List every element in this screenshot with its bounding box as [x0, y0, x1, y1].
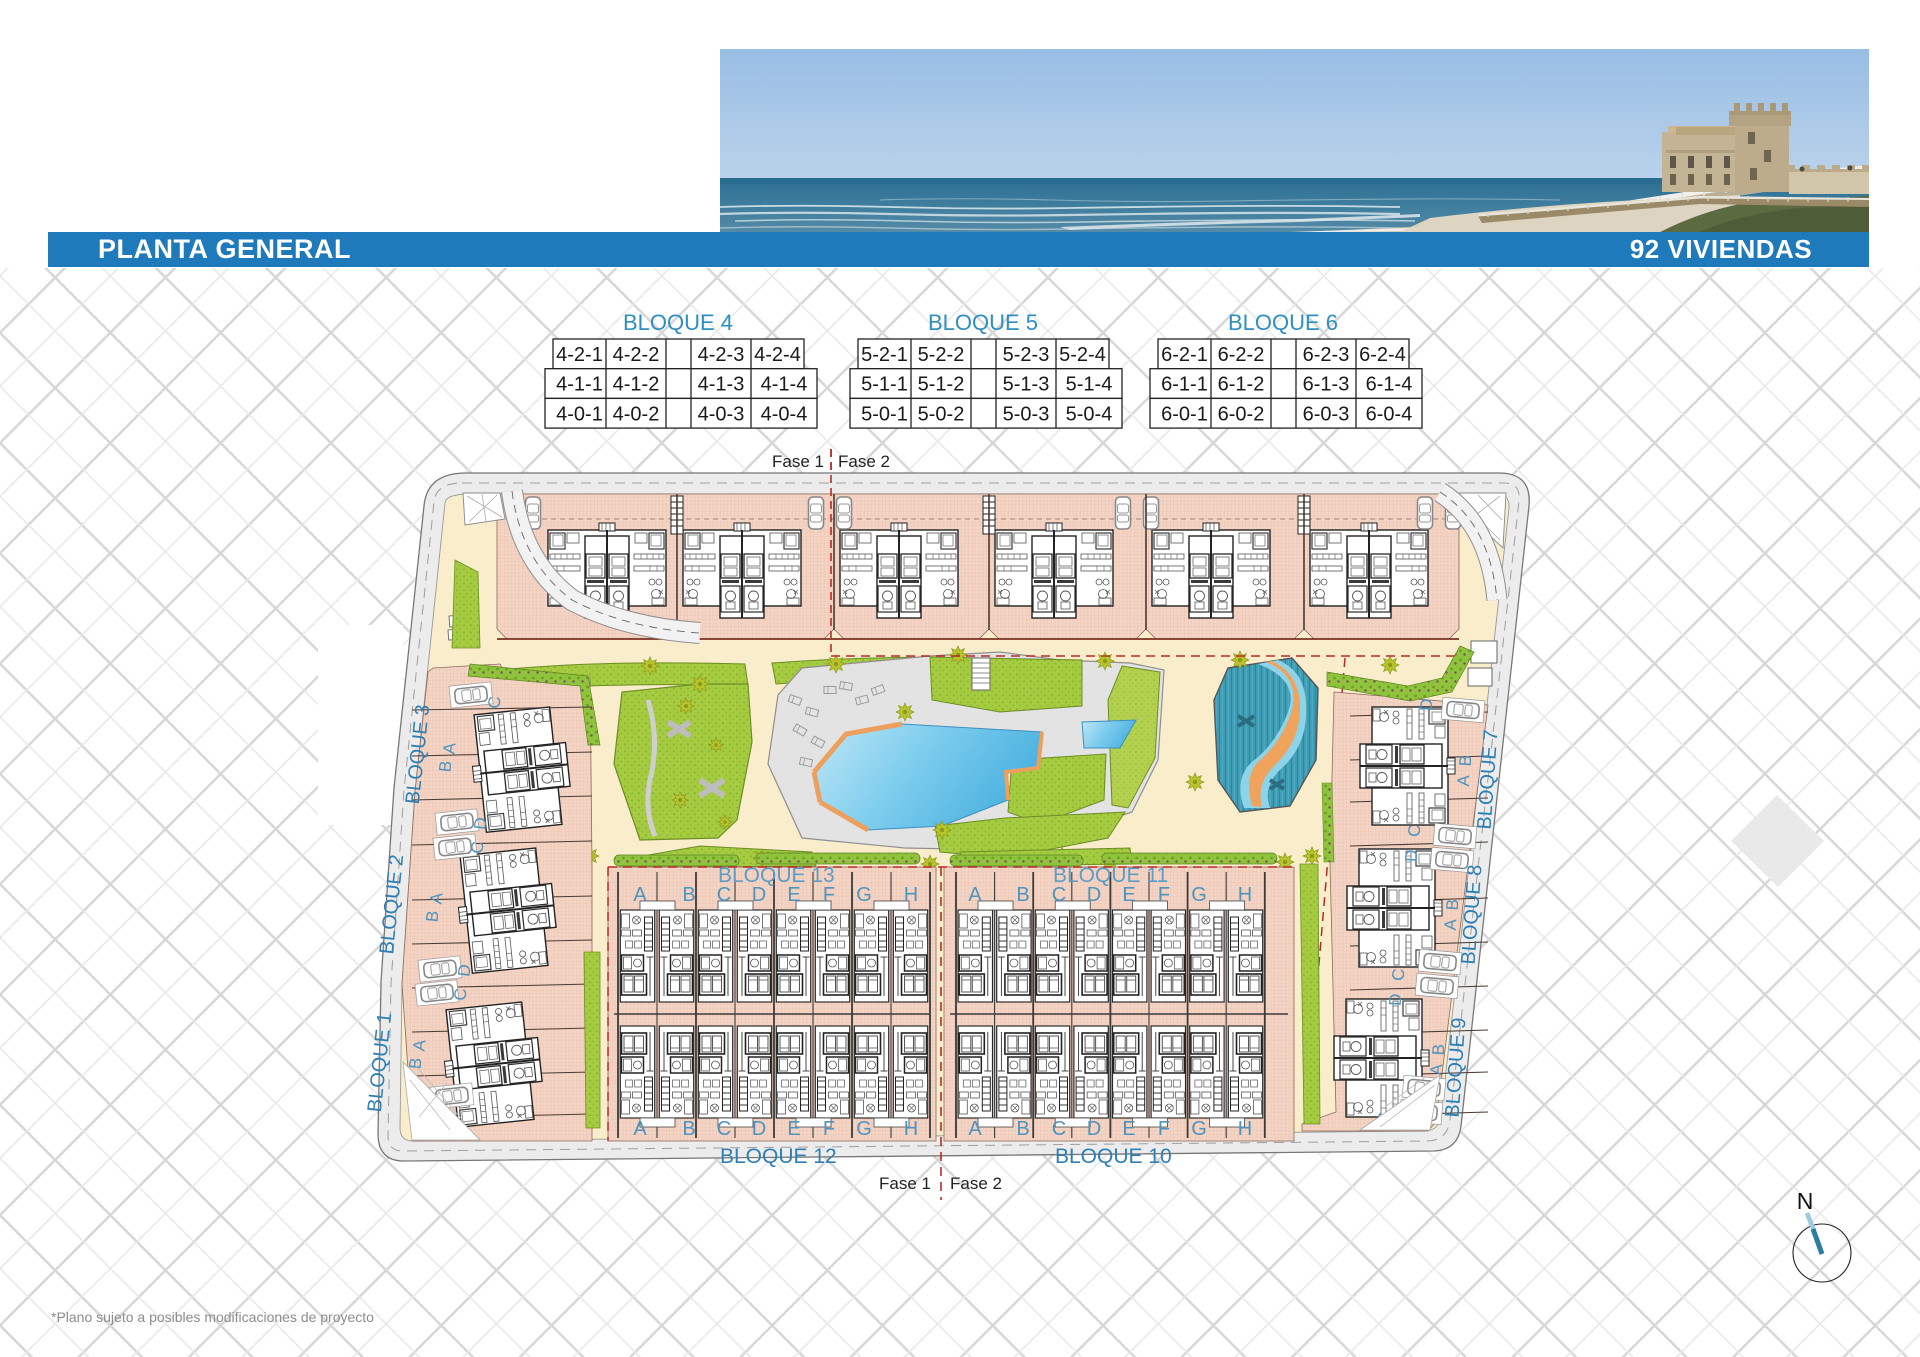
svg-text:6-2-2: 6-2-2	[1218, 344, 1265, 366]
svg-text:F: F	[823, 884, 835, 906]
svg-text:G: G	[1191, 884, 1207, 906]
svg-text:6-0-4: 6-0-4	[1366, 403, 1413, 425]
svg-text:4-0-3: 4-0-3	[698, 403, 745, 425]
svg-text:C: C	[1389, 968, 1409, 981]
svg-text:C: C	[1052, 1118, 1066, 1140]
svg-text:Fase 2: Fase 2	[950, 1174, 1002, 1193]
svg-text:*Plano sujeto a posibles modif: *Plano sujeto a posibles modificaciones …	[51, 1309, 374, 1325]
svg-text:5-1-4: 5-1-4	[1066, 374, 1113, 396]
svg-text:C: C	[484, 695, 504, 709]
svg-text:H: H	[1238, 1118, 1252, 1140]
svg-text:G: G	[856, 1118, 872, 1140]
svg-text:6-1-4: 6-1-4	[1366, 374, 1413, 396]
svg-text:92 VIVIENDAS: 92 VIVIENDAS	[1630, 234, 1812, 264]
svg-text:5-2-1: 5-2-1	[861, 344, 908, 366]
svg-text:5-1-1: 5-1-1	[861, 374, 908, 396]
svg-text:B: B	[422, 910, 442, 923]
svg-text:Fase 2: Fase 2	[838, 452, 890, 471]
svg-text:6-1-2: 6-1-2	[1218, 374, 1265, 396]
svg-text:B: B	[1016, 1118, 1029, 1140]
svg-text:F: F	[823, 1118, 835, 1140]
svg-text:D: D	[1087, 884, 1101, 906]
svg-text:6-0-2: 6-0-2	[1218, 403, 1265, 425]
svg-text:6-0-1: 6-0-1	[1161, 403, 1208, 425]
svg-text:A: A	[968, 1118, 982, 1140]
svg-text:C: C	[467, 840, 487, 854]
svg-text:5-1-2: 5-1-2	[918, 374, 965, 396]
svg-text:4-0-1: 4-0-1	[556, 403, 603, 425]
svg-text:6-2-3: 6-2-3	[1303, 344, 1350, 366]
svg-text:A: A	[968, 884, 982, 906]
svg-text:BLOQUE 12: BLOQUE 12	[720, 1145, 837, 1168]
svg-text:H: H	[904, 1118, 918, 1140]
svg-text:D: D	[1386, 993, 1406, 1006]
svg-text:E: E	[787, 884, 800, 906]
svg-text:C: C	[717, 884, 731, 906]
svg-text:E: E	[1122, 1118, 1135, 1140]
svg-text:H: H	[904, 884, 918, 906]
svg-text:4-1-4: 4-1-4	[761, 374, 808, 396]
svg-text:A: A	[633, 1118, 647, 1140]
svg-text:PLANTA GENERAL: PLANTA GENERAL	[98, 234, 351, 264]
svg-text:B: B	[682, 884, 695, 906]
svg-text:4-0-4: 4-0-4	[761, 403, 808, 425]
svg-text:5-0-4: 5-0-4	[1066, 403, 1113, 425]
svg-text:4-2-3: 4-2-3	[698, 344, 745, 366]
svg-text:5-2-2: 5-2-2	[918, 344, 965, 366]
svg-text:D: D	[752, 884, 766, 906]
svg-text:D: D	[752, 1118, 766, 1140]
svg-text:Fase 1: Fase 1	[879, 1174, 931, 1193]
svg-text:6-2-1: 6-2-1	[1161, 344, 1208, 366]
svg-text:4-0-2: 4-0-2	[613, 403, 660, 425]
svg-text:A: A	[1441, 918, 1461, 931]
svg-text:6-1-1: 6-1-1	[1161, 374, 1208, 396]
svg-text:6-0-3: 6-0-3	[1303, 403, 1350, 425]
svg-text:B: B	[682, 1118, 695, 1140]
svg-text:BLOQUE 10: BLOQUE 10	[1055, 1145, 1172, 1168]
svg-text:5-0-1: 5-0-1	[861, 403, 908, 425]
svg-text:4-2-4: 4-2-4	[754, 344, 801, 366]
svg-text:4-1-1: 4-1-1	[556, 374, 603, 396]
svg-text:C: C	[1052, 884, 1066, 906]
svg-text:B: B	[1443, 899, 1463, 911]
svg-text:B: B	[1456, 755, 1476, 767]
svg-text:F: F	[1158, 884, 1170, 906]
svg-text:C: C	[1405, 824, 1425, 837]
svg-text:6-1-3: 6-1-3	[1303, 374, 1350, 396]
svg-text:H: H	[1238, 884, 1252, 906]
svg-text:BLOQUE 6: BLOQUE 6	[1228, 310, 1338, 335]
svg-text:D: D	[454, 963, 474, 977]
svg-text:A: A	[1427, 1063, 1447, 1076]
svg-text:6-2-4: 6-2-4	[1359, 344, 1406, 366]
svg-text:D: D	[1402, 849, 1422, 862]
svg-text:N: N	[1797, 1188, 1814, 1214]
svg-text:4-2-1: 4-2-1	[556, 344, 603, 366]
svg-text:Fase 1: Fase 1	[772, 452, 824, 471]
svg-text:G: G	[856, 884, 872, 906]
svg-text:D: D	[1417, 698, 1437, 711]
svg-text:C: C	[717, 1118, 731, 1140]
svg-text:E: E	[787, 1118, 800, 1140]
svg-text:G: G	[1191, 1118, 1207, 1140]
svg-text:D: D	[1087, 1118, 1101, 1140]
svg-text:F: F	[1158, 1118, 1170, 1140]
svg-text:B: B	[1016, 884, 1029, 906]
svg-text:A: A	[633, 884, 647, 906]
svg-text:C: C	[450, 987, 470, 1001]
svg-text:A: A	[1454, 774, 1474, 787]
svg-text:5-2-4: 5-2-4	[1059, 344, 1106, 366]
svg-text:5-2-3: 5-2-3	[1003, 344, 1050, 366]
svg-text:BLOQUE 4: BLOQUE 4	[623, 310, 733, 335]
svg-text:5-1-3: 5-1-3	[1003, 374, 1050, 396]
svg-text:D: D	[470, 816, 490, 830]
svg-text:BLOQUE 5: BLOQUE 5	[928, 310, 1038, 335]
svg-text:4-2-2: 4-2-2	[613, 344, 660, 366]
svg-text:4-1-3: 4-1-3	[698, 374, 745, 396]
svg-text:E: E	[1122, 884, 1135, 906]
svg-text:B: B	[435, 760, 455, 773]
svg-text:5-0-3: 5-0-3	[1003, 403, 1050, 425]
svg-text:4-1-2: 4-1-2	[613, 374, 660, 396]
svg-text:5-0-2: 5-0-2	[918, 403, 965, 425]
